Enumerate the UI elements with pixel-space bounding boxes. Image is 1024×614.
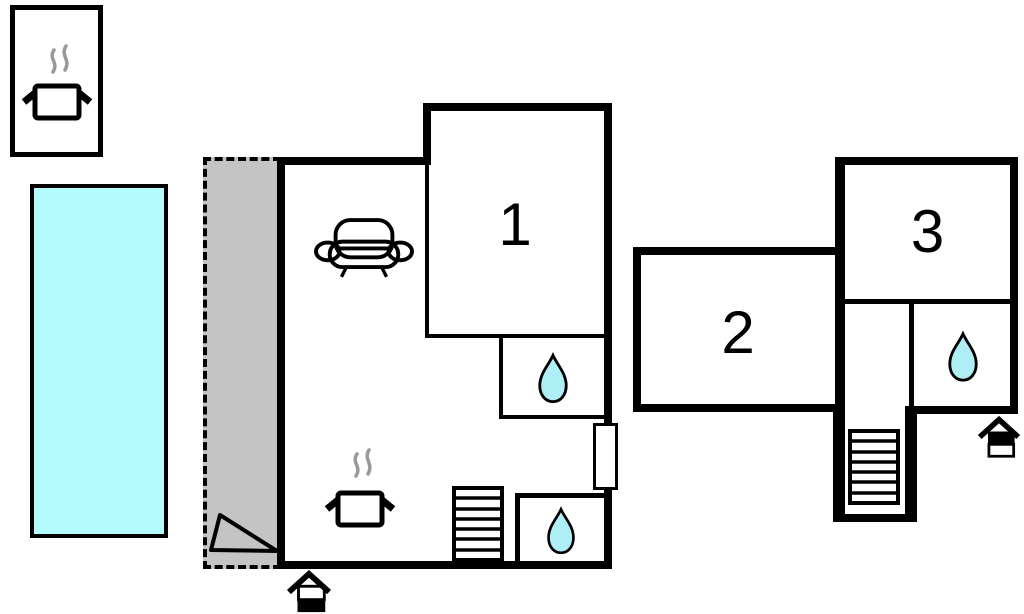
main-house-wall-bottom [277, 561, 612, 569]
bathroom1-wall-left [499, 338, 503, 419]
stairwell-wall-right [905, 406, 917, 522]
steam-icon [64, 46, 67, 70]
sofa-icon [315, 216, 413, 278]
room1-wall-top [423, 103, 612, 111]
main-house-wall-top [277, 157, 431, 165]
swimming-pool [30, 184, 168, 538]
stairs-icon [848, 429, 900, 505]
annex-bathroom-wall-left [909, 304, 914, 406]
annex-bathroom-wall-bottom [909, 406, 1018, 414]
steam-icon [52, 50, 55, 72]
terrace [203, 157, 281, 569]
main-house-wall-left [277, 157, 285, 569]
water-drop-icon [545, 504, 577, 559]
room1-label: 1 [425, 115, 605, 335]
annex-wall-right [1010, 157, 1018, 414]
bathroom1-wall-bottom [499, 415, 604, 419]
water-drop-icon [946, 329, 980, 386]
bbq-area [10, 5, 103, 157]
water-drop-icon [536, 350, 570, 408]
stairs-icon [452, 486, 504, 562]
annex-wall-left [835, 157, 845, 412]
door-opening [593, 423, 618, 490]
annex-wall-top [835, 157, 1018, 165]
room2-label: 2 [641, 262, 835, 404]
awning-triangle-icon [207, 509, 281, 559]
room2-wall-top [633, 247, 845, 255]
stairwell-wall-left [833, 406, 845, 522]
stairwell-wall-bottom [833, 514, 917, 522]
cooking-pot-icon [21, 40, 93, 122]
room2-wall-left [633, 247, 641, 412]
floor-plan: 1 [0, 0, 1024, 614]
bathroom2-wall-left [515, 493, 520, 561]
entrance-arrow-icon [977, 415, 1021, 459]
steam-icon [355, 454, 358, 476]
steam-icon [367, 450, 370, 474]
cooking-pot-icon [324, 448, 396, 530]
main-house-wall-right [604, 103, 612, 569]
bathroom2-wall-top [515, 493, 604, 498]
room3-label: 3 [845, 165, 1010, 299]
room2-wall-bottom [633, 404, 845, 412]
room3-wall-bottom [845, 299, 1010, 304]
entrance-arrow-icon [284, 570, 334, 614]
